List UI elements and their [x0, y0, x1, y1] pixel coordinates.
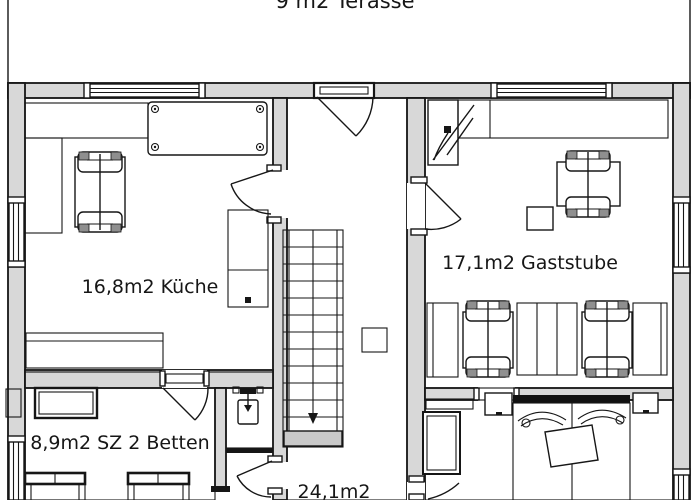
window-gaststube-top [491, 83, 612, 98]
double-bed [513, 395, 630, 500]
label-bedroom-sz: 8,9m2 SZ 2 Betten [30, 432, 209, 454]
bed-headboard [513, 395, 630, 403]
floor-plan: 9 m2 Terasse 16,8m2 Küche 17,1m2 Gaststu… [0, 0, 700, 500]
gaststube-table-a [463, 301, 513, 377]
door-entrance [314, 83, 374, 136]
label-kitchen: 16,8m2 Küche [82, 276, 219, 298]
bed-single-1 [25, 473, 85, 500]
door-kitchen [231, 165, 288, 223]
window-kitchen-left [8, 197, 25, 267]
stair-landing [284, 431, 342, 446]
kitchen-counter-bottom [26, 333, 163, 368]
washbasin-icon [233, 387, 263, 424]
gaststube-table-middle [517, 303, 577, 375]
wall-washroom [215, 388, 226, 491]
label-gaststube: 17,1m2 Gaststube [442, 252, 618, 274]
door-bedroom-right [407, 476, 459, 500]
window-bedroom-right [673, 469, 690, 500]
duvet [545, 425, 598, 467]
kitchen-counter-right [228, 210, 268, 307]
window-kitchen-top [84, 83, 205, 98]
window-gaststube-right [673, 197, 690, 273]
wall-washroom-bottom [226, 448, 273, 453]
kitchen-wall-cabinet [148, 102, 267, 155]
gaststube-table-c [582, 301, 632, 377]
staircase [283, 230, 343, 447]
wall-right [673, 83, 690, 500]
kitchen-counter-top [25, 103, 148, 138]
bed-single-2 [128, 473, 189, 500]
kitchen-furniture [25, 102, 268, 368]
kitchen-counter-left [25, 138, 62, 233]
wall-kitchen-bedroom [25, 370, 273, 388]
door-gaststube [407, 177, 461, 235]
kitchen-table [75, 152, 125, 232]
room-gaststube [425, 98, 673, 388]
gaststube-table-right [557, 151, 620, 217]
door-hall-lower [237, 456, 288, 497]
label-hall-area: 24,1m2 [298, 481, 371, 500]
bedroom-dresser [35, 388, 97, 418]
gaststube-furniture [427, 100, 668, 377]
label-terrace: 9 m2 Terasse [275, 0, 414, 13]
gaststube-bench-left [427, 303, 458, 377]
gaststube-bench-right [633, 303, 667, 375]
pillow-icon [578, 410, 626, 424]
window-bedroom-left [8, 436, 25, 500]
nightstand-right [633, 393, 658, 413]
nightstand-left [485, 393, 512, 415]
washroom-fixtures [233, 387, 263, 424]
tiled-stove-icon [428, 100, 474, 165]
stair-direction-arrow [308, 413, 318, 424]
hall-shaft [362, 328, 387, 352]
gaststube-stool [527, 207, 553, 230]
door-bedroom-sz [160, 370, 209, 420]
wardrobe [423, 412, 460, 474]
gaststube-sideboard [458, 100, 668, 138]
wall-cap [211, 486, 230, 492]
